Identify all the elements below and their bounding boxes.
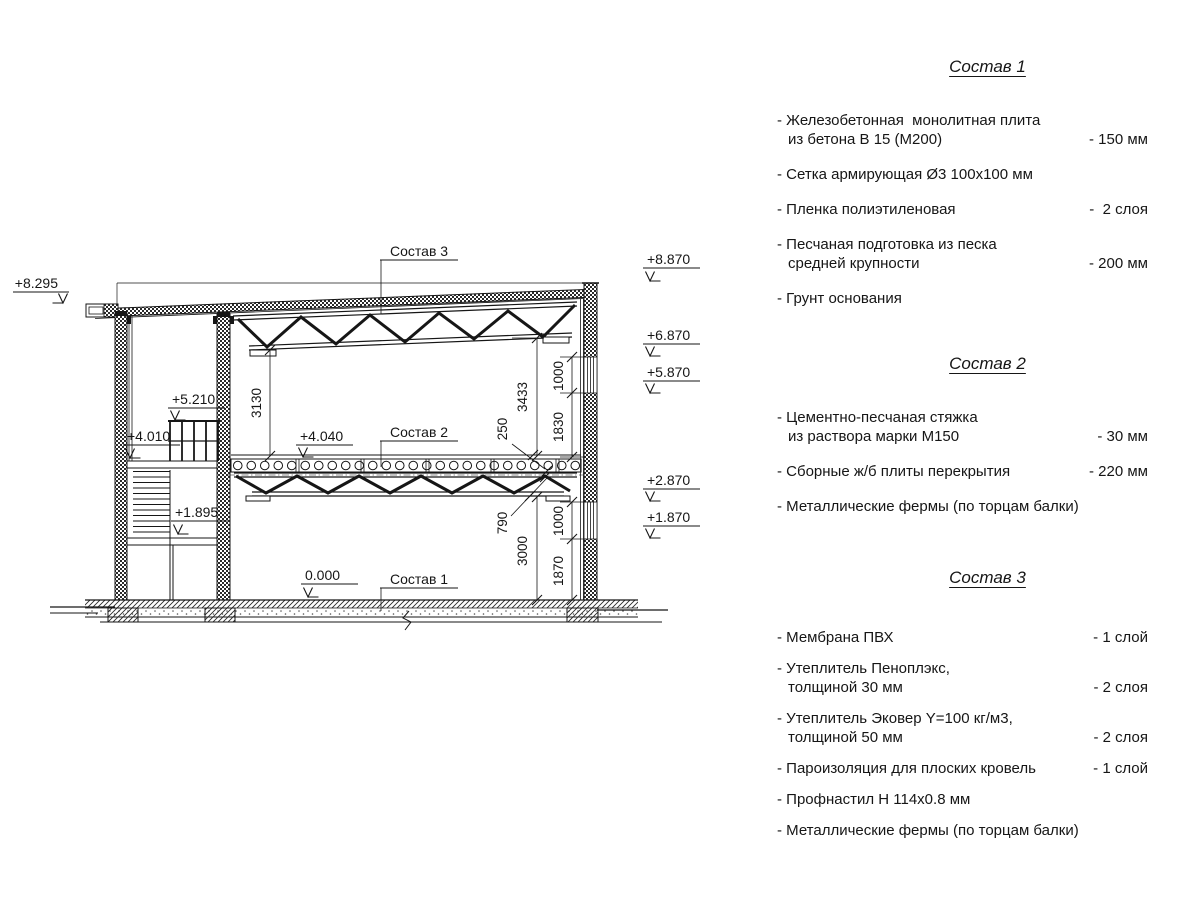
elevation-1895-label: +1.895 <box>175 504 218 520</box>
material-line: толщиной 50 мм <box>777 728 1013 747</box>
material-value: - 2 слоя <box>1085 678 1148 697</box>
section-drawing: 3130 3433 250 1000 1830 790 3000 1000 18… <box>0 0 760 900</box>
material-item: - Сборные ж/б плиты перекрытия - 220 мм <box>777 462 1148 481</box>
dim-1870: 1870 <box>551 556 566 586</box>
elevation-4010: +4.010 <box>123 428 180 458</box>
material-item: - Профнастил Н 114х0.8 мм <box>777 790 1148 809</box>
material-item: - Мембрана ПВХ - 1 слой <box>777 628 1148 647</box>
material-line: толщиной 30 мм <box>777 678 950 697</box>
left-wall <box>115 311 132 600</box>
panel-title: Состав 1 <box>777 57 1148 77</box>
material-line: - Мембрана ПВХ <box>777 628 894 647</box>
material-item: - Утеплитель Эковер Y=100 кг/м3, толщино… <box>777 709 1148 747</box>
roof <box>86 283 597 319</box>
material-line: - Грунт основания <box>777 289 902 308</box>
material-item: - Пленка полиэтиленовая - 2 слоя <box>777 200 1148 219</box>
material-line: из бетона В 15 (М200) <box>777 130 1040 149</box>
dim-250: 250 <box>495 418 510 441</box>
callout-sostav-1-label: Состав 1 <box>390 571 448 587</box>
material-line: - Железобетонная монолитная плита <box>777 111 1040 130</box>
material-line: - Сборные ж/б плиты перекрытия <box>777 462 1010 481</box>
railing <box>168 421 220 461</box>
material-line: - Утеплитель Эковер Y=100 кг/м3, <box>777 709 1013 728</box>
material-line: из раствора марки М150 <box>777 427 978 446</box>
lower-window <box>584 502 597 539</box>
dim-1000-lower: 1000 <box>551 506 566 536</box>
drawing-svg: 3130 3433 250 1000 1830 790 3000 1000 18… <box>0 0 760 900</box>
material-value: - 2 слоя <box>1085 728 1148 747</box>
elevation-5210: +5.210 <box>168 391 225 420</box>
material-item: - Грунт основания <box>777 289 1148 308</box>
composition-panel-2: Состав 2 - Цементно-песчаная стяжка из р… <box>777 354 1148 532</box>
material-line: - Пленка полиэтиленовая <box>777 200 956 219</box>
stair-wall <box>213 312 234 600</box>
elevation-8870: +8.870 <box>643 251 700 281</box>
panel-title: Состав 2 <box>777 354 1148 374</box>
floor-slab <box>231 455 581 472</box>
elevation-8870-label: +8.870 <box>647 251 690 267</box>
material-line: - Металлические фермы (по торцам балки) <box>777 497 1079 516</box>
elevation-2870: +2.870 <box>643 472 700 501</box>
material-value: - 1 слой <box>1085 759 1148 778</box>
material-item: - Утеплитель Пеноплэкс, толщиной 30 мм -… <box>777 659 1148 697</box>
material-value: - 30 мм <box>1089 427 1148 446</box>
elevation-4040: +4.040 <box>296 428 353 457</box>
roof-truss <box>233 302 577 356</box>
dim-1000-upper: 1000 <box>551 361 566 391</box>
elevation-2870-label: +2.870 <box>647 472 690 488</box>
material-line: - Металлические фермы (по торцам балки) <box>777 821 1079 840</box>
dim-790: 790 <box>495 512 510 535</box>
callout-sostav-2-label: Состав 2 <box>390 424 448 440</box>
material-line: - Цементно-песчаная стяжка <box>777 408 978 427</box>
dim-3000: 3000 <box>515 536 530 566</box>
material-value: - 2 слоя <box>1081 200 1148 219</box>
elevation-0000: 0.000 <box>301 567 358 597</box>
dim-1830: 1830 <box>551 412 566 442</box>
elevation-5870-label: +5.870 <box>647 364 690 380</box>
upper-window <box>584 357 597 393</box>
material-line: - Утеплитель Пеноплэкс, <box>777 659 950 678</box>
composition-panel-1: Состав 1 - Железобетонная монолитная пли… <box>777 57 1148 324</box>
material-item: - Металлические фермы (по торцам балки) <box>777 821 1148 840</box>
material-item: - Цементно-песчаная стяжка из раствора м… <box>777 408 1148 446</box>
material-line: - Профнастил Н 114х0.8 мм <box>777 790 970 809</box>
elevation-8295-label: +8.295 <box>15 275 58 291</box>
material-line: - Песчаная подготовка из песка <box>777 235 997 254</box>
material-line: средней крупности <box>777 254 997 273</box>
elevation-1870-label: +1.870 <box>647 509 690 525</box>
material-value: - 150 мм <box>1081 130 1148 149</box>
elevation-0000-label: 0.000 <box>305 567 340 583</box>
material-line: - Сетка армирующая Ø3 100x100 мм <box>777 165 1033 184</box>
material-line: - Пароизоляция для плоских кровель <box>777 759 1036 778</box>
gutter-detail <box>86 304 118 317</box>
stair-flight <box>133 472 170 533</box>
right-wall <box>581 283 600 600</box>
dim-3130: 3130 <box>249 388 264 418</box>
elevation-4010-label: +4.010 <box>127 428 170 444</box>
panel-title: Состав 3 <box>777 568 1148 588</box>
material-value: - 1 слой <box>1085 628 1148 647</box>
material-item: - Песчаная подготовка из песка средней к… <box>777 235 1148 273</box>
elevation-5870: +5.870 <box>643 364 700 393</box>
elevation-1870: +1.870 <box>643 509 700 538</box>
callout-sostav-3-label: Состав 3 <box>390 243 448 259</box>
dim-3433: 3433 <box>515 382 530 412</box>
elevation-4040-label: +4.040 <box>300 428 343 444</box>
material-value: - 220 мм <box>1081 462 1148 481</box>
material-item: - Железобетонная монолитная плита из бет… <box>777 111 1148 149</box>
ground-slab <box>50 600 668 630</box>
material-item: - Металлические фермы (по торцам балки) <box>777 497 1148 516</box>
material-item: - Пароизоляция для плоских кровель - 1 с… <box>777 759 1148 778</box>
elevation-5210-label: +5.210 <box>172 391 215 407</box>
composition-panel-3: Состав 3 - Мембрана ПВХ - 1 слой - Утепл… <box>777 568 1148 852</box>
material-value: - 200 мм <box>1081 254 1148 273</box>
elevation-6870: +6.870 <box>643 327 700 356</box>
elevation-6870-label: +6.870 <box>647 327 690 343</box>
sheet: 3130 3433 250 1000 1830 790 3000 1000 18… <box>0 0 1200 900</box>
material-item: - Сетка армирующая Ø3 100x100 мм <box>777 165 1148 184</box>
elevation-8295: +8.295 <box>13 275 69 303</box>
